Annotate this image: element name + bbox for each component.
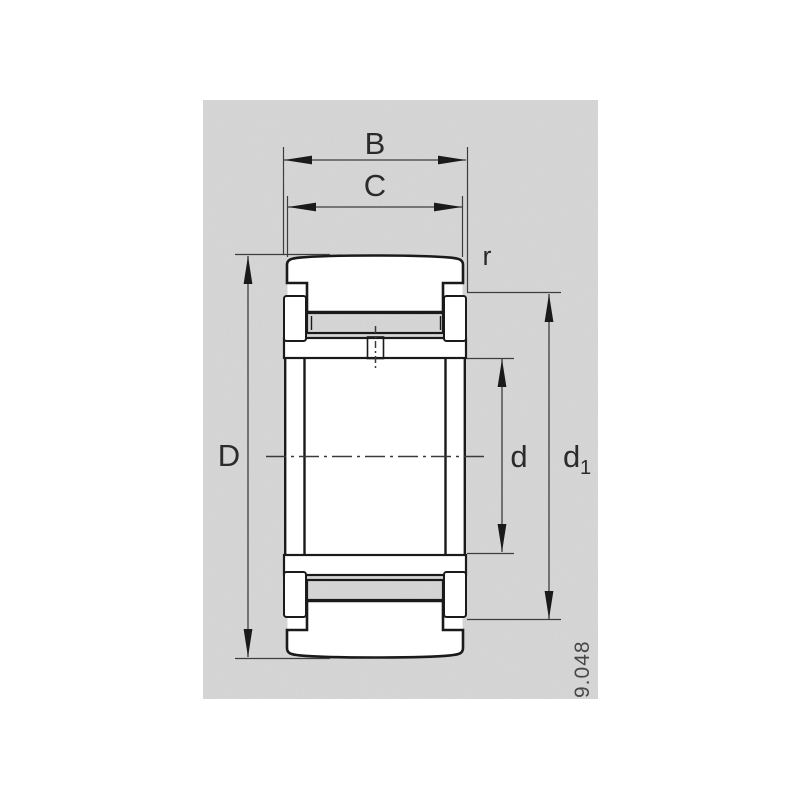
- dim-label-r: r: [483, 241, 492, 271]
- technical-drawing: B C D d d 1 r 9.048: [0, 0, 800, 800]
- dim-label-d: d: [510, 439, 527, 474]
- side-washer-bottom-right: [444, 572, 466, 617]
- outer-ring-bottom: [287, 601, 463, 658]
- notch-bottom-right: [444, 617, 463, 630]
- side-washer-top-left: [284, 296, 306, 341]
- notch-bottom-left: [288, 617, 307, 630]
- dim-label-d1-base: d: [563, 439, 580, 474]
- dim-label-D: D: [218, 438, 240, 473]
- notch-top-right: [444, 284, 463, 297]
- side-washer-top-right: [444, 296, 466, 341]
- page: B C D d d 1 r 9.048: [0, 0, 800, 800]
- figure-number: 9.048: [571, 640, 594, 698]
- dim-label-C: C: [364, 168, 386, 203]
- notch-top-left: [288, 284, 307, 297]
- dim-label-B: B: [365, 126, 386, 161]
- side-washer-bottom-left: [284, 572, 306, 617]
- dim-label-d1-subscript: 1: [580, 457, 591, 479]
- inner-ring-bottom: [284, 555, 466, 575]
- outer-ring-top: [287, 256, 463, 313]
